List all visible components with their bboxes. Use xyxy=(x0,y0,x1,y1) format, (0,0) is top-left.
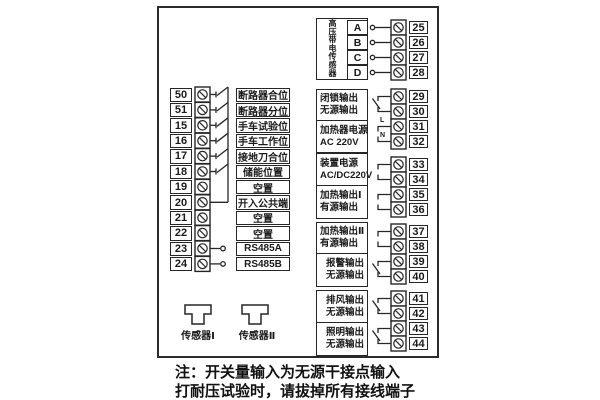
sensor-1-label: 传感器Ⅰ xyxy=(178,327,218,342)
left-input-label: 手车试验位 xyxy=(236,118,290,133)
left-input-label: 手车工作位 xyxy=(236,134,290,149)
output-label-line1: 装置电源 xyxy=(320,158,358,170)
left-input-label: 断路器合位 xyxy=(236,88,290,103)
left-terminal-number: 24 xyxy=(170,257,192,272)
left-terminal-number: 20 xyxy=(170,195,192,210)
output-label-line1: 报警输出 xyxy=(326,258,364,270)
hv-channel-letter: D xyxy=(347,65,368,80)
left-input-label: 空置 xyxy=(236,180,290,195)
left-input-label: 空置 xyxy=(236,226,290,241)
left-input-label: 储能位置 xyxy=(236,165,290,180)
right-terminal-number: 38 xyxy=(409,240,428,254)
right-terminal-number: 25 xyxy=(409,21,428,35)
right-terminal-number: 44 xyxy=(409,337,428,351)
right-terminal-number: 34 xyxy=(409,173,428,187)
output-label-line2: 有源输出 xyxy=(320,202,358,214)
left-input-label: RS485B xyxy=(236,257,290,272)
output-label-line2: 无源输出 xyxy=(326,307,364,319)
output-label-line2: AC/DC220V xyxy=(320,170,372,182)
output-label-box: 闭锁输出 无源输出 xyxy=(316,89,368,121)
left-terminal-number: 22 xyxy=(170,226,192,241)
output-label-line2: 无源输出 xyxy=(320,105,358,117)
sensor-2-label: 传感器Ⅱ xyxy=(235,327,279,342)
right-terminal-number: 30 xyxy=(409,105,428,119)
left-terminal-number: 18 xyxy=(170,165,192,180)
left-input-label: 空置 xyxy=(236,211,290,226)
left-terminal-number: 50 xyxy=(170,88,192,103)
phase-mark-L: L xyxy=(380,117,384,124)
right-terminal-number: 31 xyxy=(409,120,428,134)
phase-mark-N: N xyxy=(380,132,385,139)
left-terminal-number: 23 xyxy=(170,242,192,257)
right-terminal-number: 41 xyxy=(409,292,428,306)
output-label-line1: 加热器电源 xyxy=(320,125,368,137)
output-label-line1: 照明输出 xyxy=(326,327,364,339)
output-label-line2: 有源输出 xyxy=(320,238,358,250)
right-terminal-number: 36 xyxy=(409,203,428,217)
output-label-line2: 无源输出 xyxy=(326,270,364,282)
right-terminal-number: 35 xyxy=(409,188,428,202)
hv-channel-letter: C xyxy=(347,50,368,65)
left-terminal-number: 17 xyxy=(170,149,192,164)
hv-sensor-label: 高压带电传感器 xyxy=(319,19,345,78)
output-label-line1: 闭锁输出 xyxy=(320,93,358,105)
note-line-2: 打耐压试验时，请拔掉所有接线端子 xyxy=(175,380,415,400)
left-input-label: 断路器分位 xyxy=(236,103,290,118)
note-line-1: 注：开关量输入为无源干接点输入 xyxy=(175,361,400,382)
right-terminal-number: 33 xyxy=(409,158,428,172)
wiring-diagram: 50 51 15 16 17 18 19 20 21 22 23 24 断路器合… xyxy=(0,0,600,400)
right-terminal-number: 28 xyxy=(409,66,428,80)
output-label-line2: AC 220V xyxy=(320,137,359,149)
output-label-box: 加热器电源 AC 220V xyxy=(316,120,368,153)
left-input-label: 接地刀合位 xyxy=(236,149,290,164)
right-terminal-number: 40 xyxy=(409,270,428,284)
right-terminal-number: 43 xyxy=(409,322,428,336)
right-terminal-number: 27 xyxy=(409,51,428,65)
output-label-line2: 无源输出 xyxy=(326,339,364,351)
output-label-line1: 加热输出Ⅱ xyxy=(320,226,364,238)
left-terminal-number: 19 xyxy=(170,180,192,195)
left-terminal-number: 16 xyxy=(170,134,192,149)
right-terminal-number: 39 xyxy=(409,255,428,269)
right-terminal-number: 42 xyxy=(409,307,428,321)
output-label-box: 照明输出 无源输出 xyxy=(316,322,368,356)
left-input-label: 开入公共端 xyxy=(236,195,290,210)
diagram-border xyxy=(157,6,439,358)
output-label-box: 排风输出 无源输出 xyxy=(316,290,368,323)
left-terminal-number: 51 xyxy=(170,103,192,118)
output-label-line1: 排风输出 xyxy=(326,295,364,307)
left-terminal-number: 21 xyxy=(170,211,192,226)
output-label-box: 装置电源 AC/DC220V xyxy=(316,153,368,186)
left-terminal-number: 15 xyxy=(170,118,192,133)
hv-channel-letter: A xyxy=(347,20,368,35)
right-terminal-number: 29 xyxy=(409,90,428,104)
output-label-box: 加热输出Ⅱ 有源输出 xyxy=(316,222,368,254)
right-terminal-number: 26 xyxy=(409,36,428,50)
left-input-label: RS485A xyxy=(236,242,290,257)
output-label-line1: 加热输出Ⅰ xyxy=(320,190,362,202)
hv-channel-letter: B xyxy=(347,35,368,50)
output-label-box: 加热输出Ⅰ 有源输出 xyxy=(316,185,368,219)
right-terminal-number: 37 xyxy=(409,225,428,239)
output-label-box: 报警输出 无源输出 xyxy=(316,253,368,287)
right-terminal-number: 32 xyxy=(409,135,428,149)
